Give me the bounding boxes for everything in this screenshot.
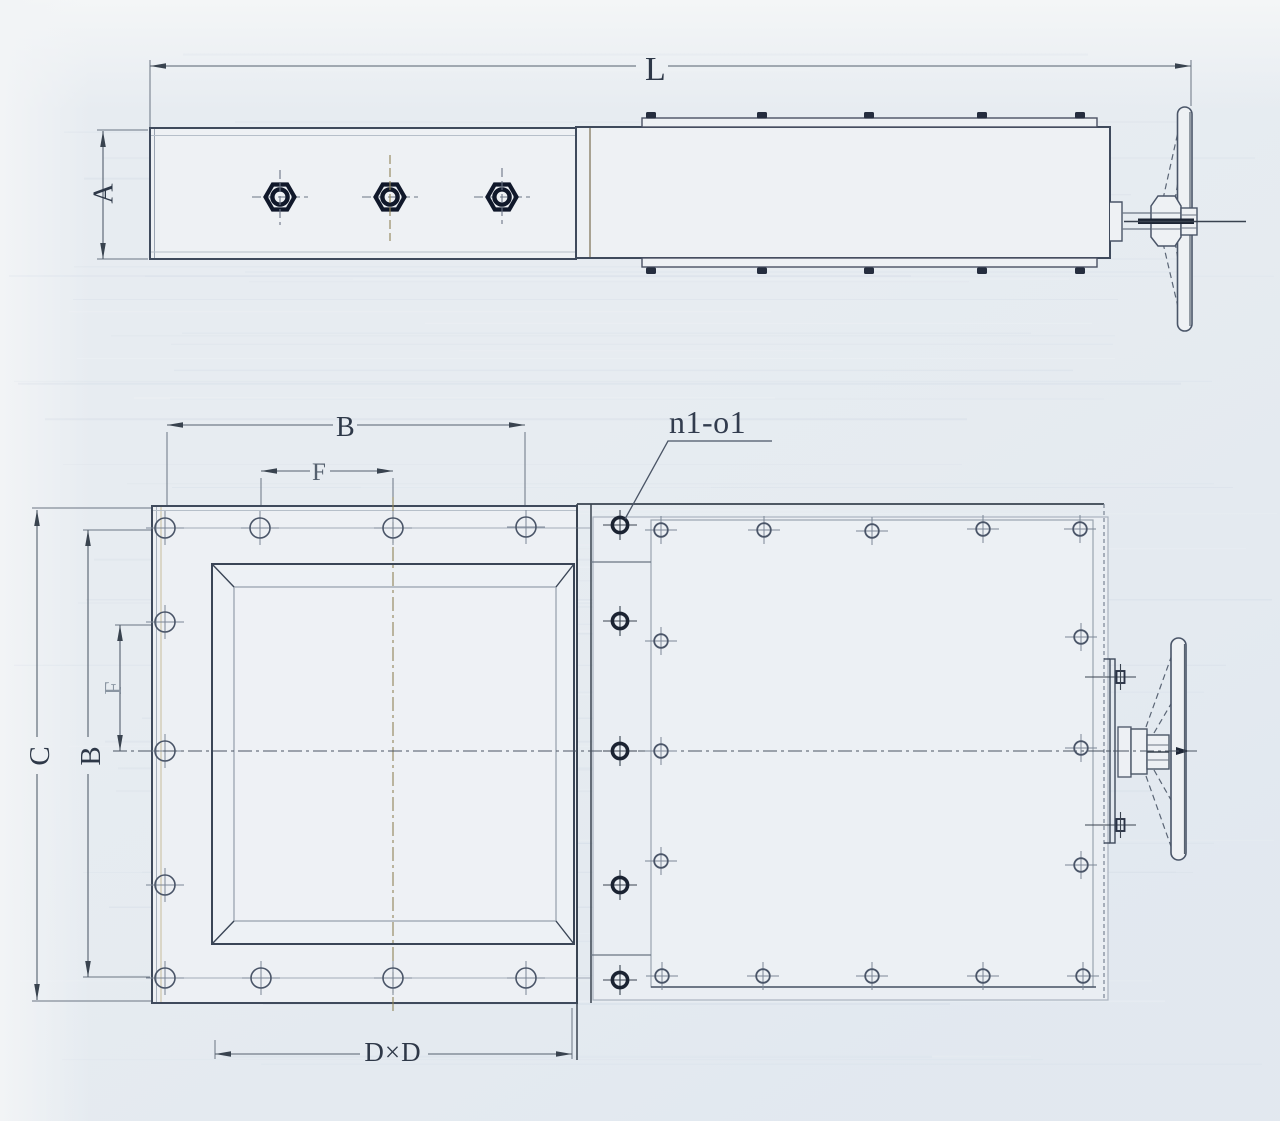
svg-text:D×D: D×D xyxy=(364,1037,421,1067)
svg-text:n1-o1: n1-o1 xyxy=(669,404,746,440)
svg-text:F: F xyxy=(312,459,326,486)
svg-text:L: L xyxy=(645,51,666,88)
svg-text:F: F xyxy=(101,681,127,694)
svg-text:A: A xyxy=(89,183,120,204)
svg-text:C: C xyxy=(24,746,56,765)
svg-text:B: B xyxy=(336,412,355,443)
svg-text:B: B xyxy=(75,746,107,765)
